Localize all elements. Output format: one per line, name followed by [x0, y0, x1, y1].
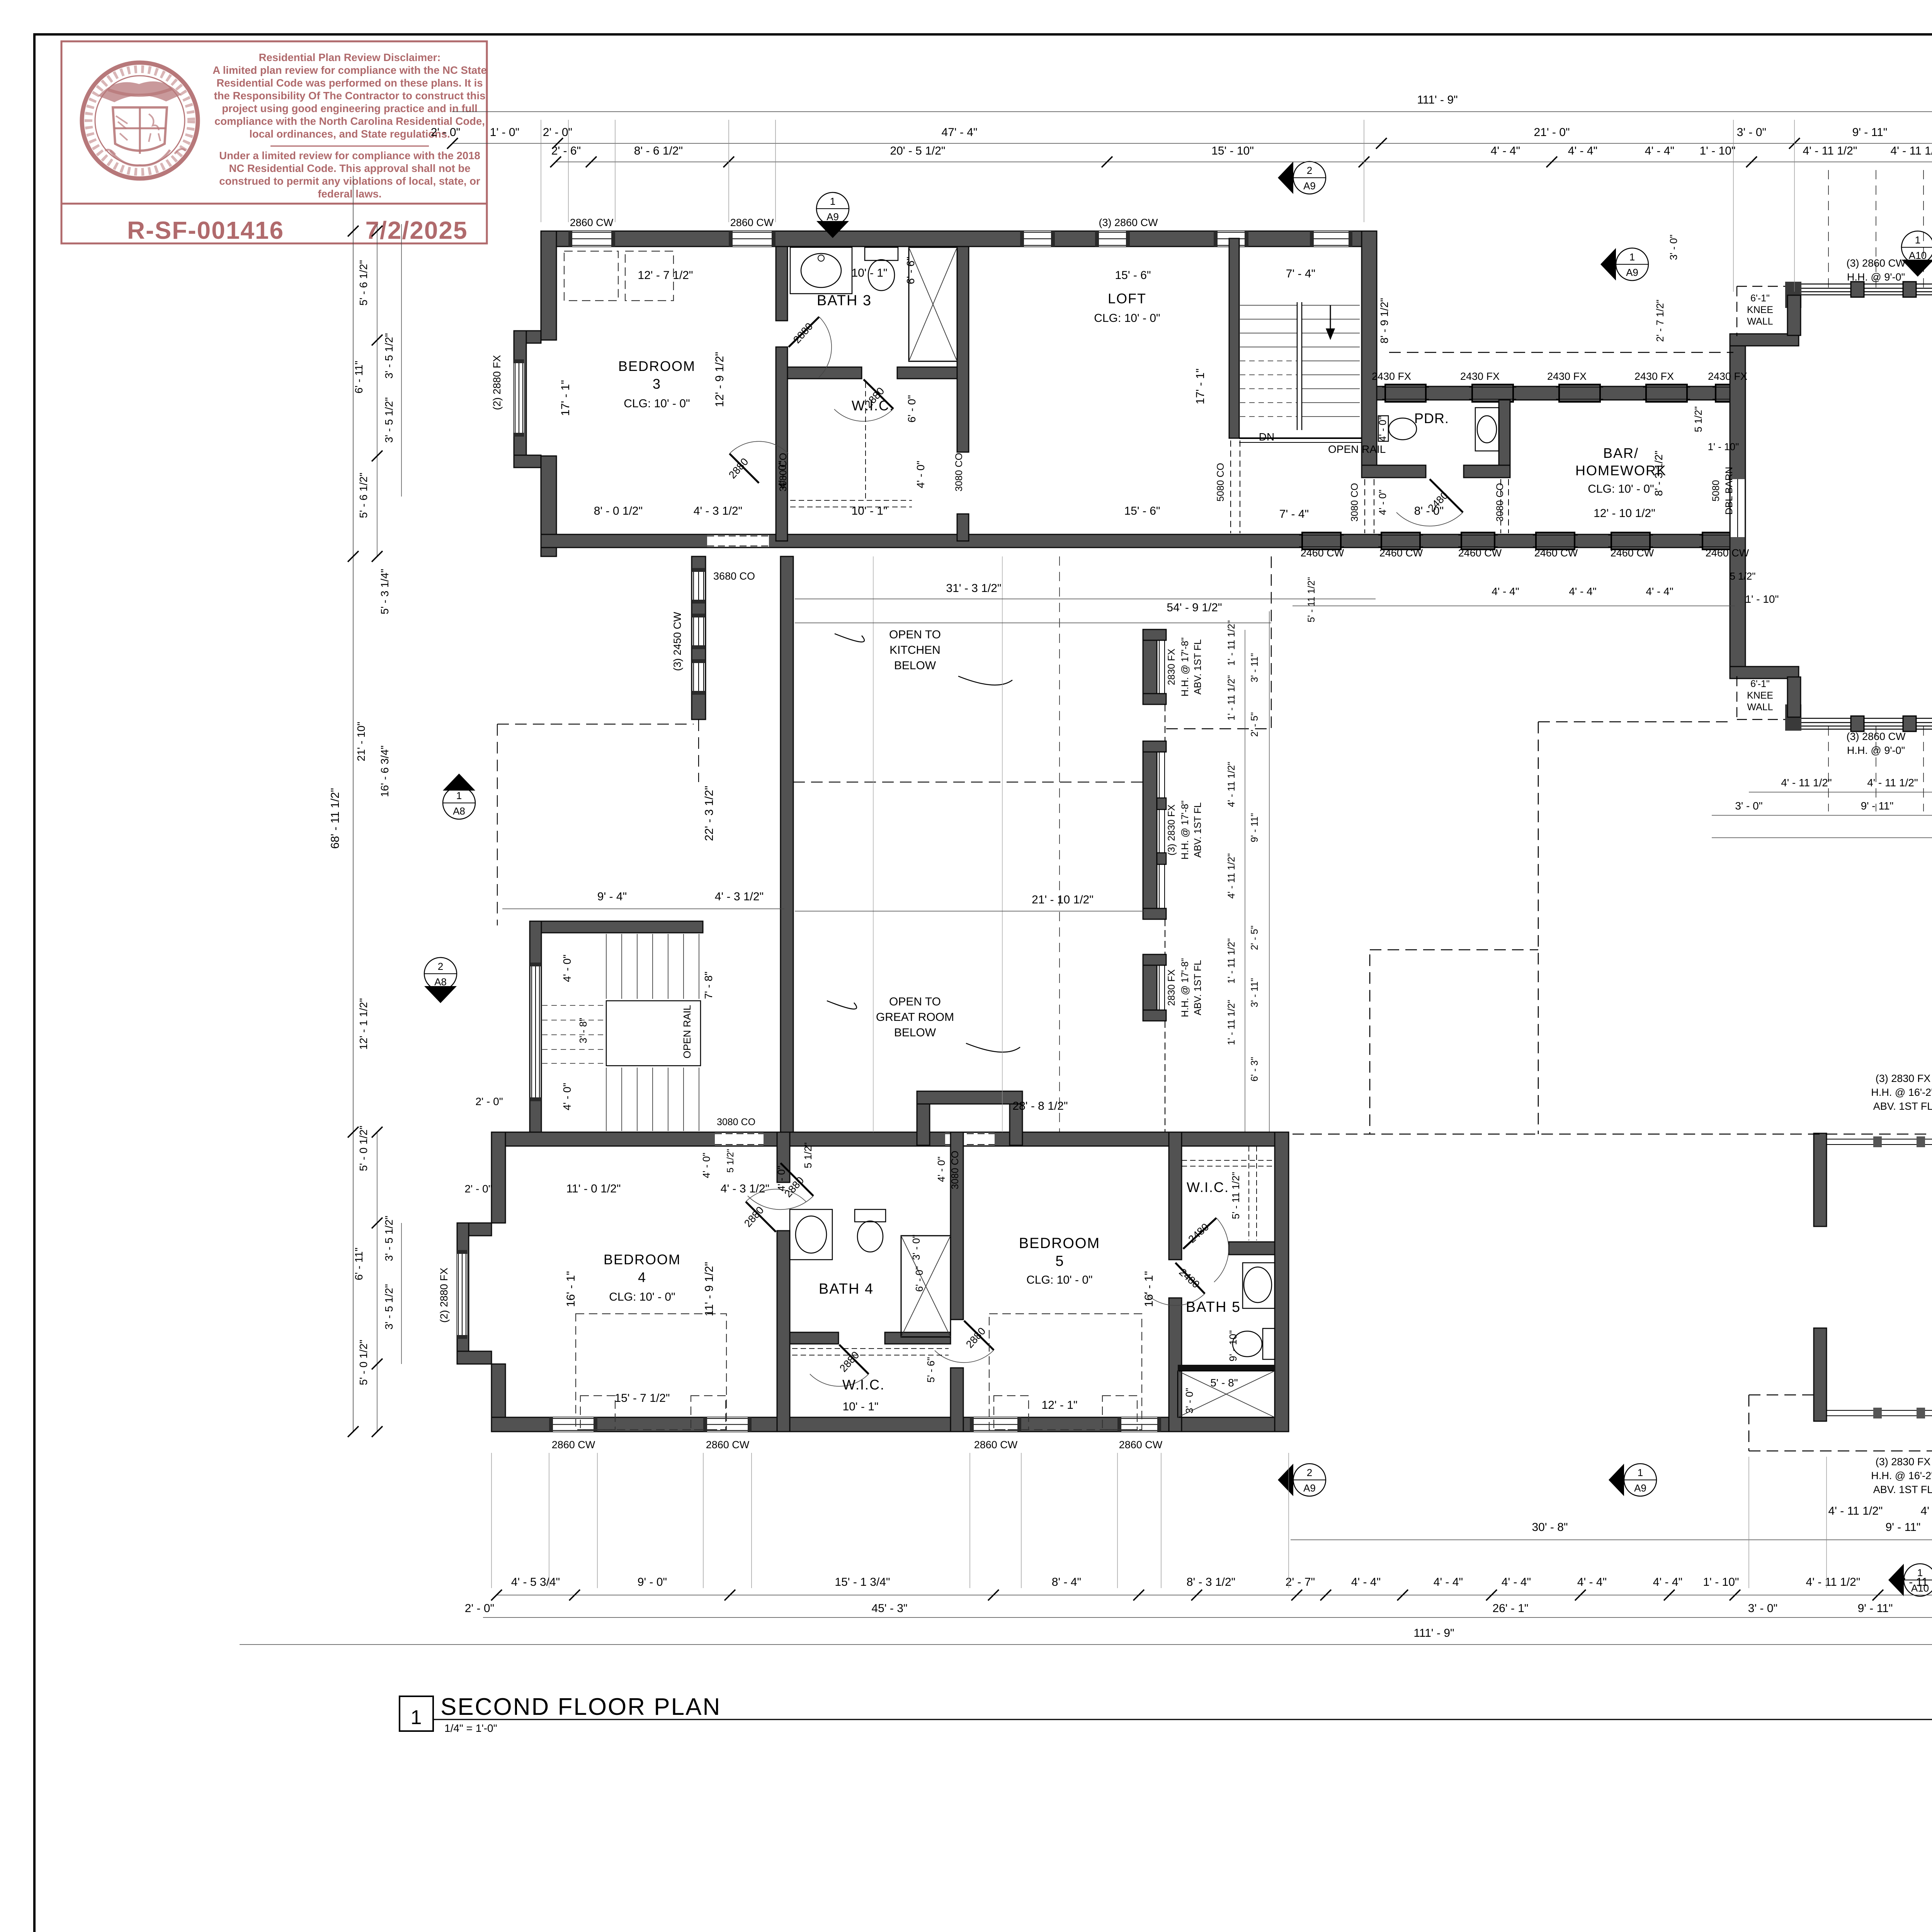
svg-text:2860 CW: 2860 CW: [552, 1439, 595, 1451]
svg-text:1' - 11 1/2": 1' - 11 1/2": [1226, 620, 1237, 665]
svg-text:3' - 0": 3' - 0": [1748, 1602, 1777, 1615]
svg-text:BEDROOM: BEDROOM: [618, 358, 696, 374]
svg-text:4' - 4": 4' - 4": [1646, 585, 1673, 597]
svg-text:8' - 4": 8' - 4": [1052, 1576, 1081, 1588]
svg-text:2430 FX: 2430 FX: [1460, 371, 1500, 382]
svg-text:16' - 1": 16' - 1": [1143, 1271, 1155, 1307]
svg-text:6' - 0": 6' - 0": [906, 395, 918, 422]
svg-text:5' - 8": 5' - 8": [1210, 1377, 1238, 1389]
svg-text:OPEN RAIL: OPEN RAIL: [1328, 443, 1386, 455]
svg-text:3' - 0": 3' - 0": [1737, 126, 1766, 139]
svg-text:KITCHEN: KITCHEN: [889, 644, 940, 656]
svg-text:2' - 6": 2' - 6": [551, 145, 581, 157]
svg-text:17' - 1": 17' - 1": [1194, 368, 1207, 404]
svg-text:5' - 3 1/4": 5' - 3 1/4": [379, 569, 391, 614]
svg-text:KNEE: KNEE: [1747, 304, 1773, 315]
svg-text:A9: A9: [1626, 267, 1638, 278]
svg-text:15' - 6": 15' - 6": [1115, 269, 1151, 282]
svg-text:3' - 5 1/2": 3' - 5 1/2": [383, 397, 395, 443]
svg-text:54' - 9 1/2": 54' - 9 1/2": [1167, 601, 1222, 614]
svg-text:12' - 10 1/2": 12' - 10 1/2": [1594, 507, 1655, 520]
svg-text:A limited plan review for comp: A limited plan review for compliance wit…: [213, 64, 487, 76]
svg-text:4' - 0": 4' - 0": [561, 1083, 573, 1110]
svg-text:CLG: 10' - 0": CLG: 10' - 0": [609, 1291, 675, 1303]
svg-text:(2) 2880 FX: (2) 2880 FX: [491, 355, 503, 410]
svg-text:11' - 9 1/2": 11' - 9 1/2": [703, 1262, 716, 1316]
svg-text:3' - 8": 3' - 8": [577, 1018, 589, 1043]
svg-text:1: 1: [1915, 234, 1920, 246]
svg-text:ABV. 1ST FL: ABV. 1ST FL: [1192, 802, 1203, 857]
svg-text:3080 CO: 3080 CO: [950, 1151, 961, 1189]
svg-text:4' - 4": 4' - 4": [1434, 1576, 1463, 1588]
svg-text:3' - 11": 3' - 11": [1249, 978, 1260, 1007]
svg-text:6' - 3": 6' - 3": [1249, 1057, 1260, 1082]
svg-text:A9: A9: [827, 211, 839, 223]
svg-text:9' - 10": 9' - 10": [1227, 1330, 1239, 1362]
svg-text:4' - 4": 4' - 4": [1502, 1576, 1531, 1588]
svg-text:2460 CW: 2460 CW: [1379, 547, 1423, 559]
svg-text:SECOND FLOOR PLAN: SECOND FLOOR PLAN: [440, 1694, 721, 1720]
svg-text:10' - 1": 10' - 1": [851, 267, 887, 279]
svg-text:4' - 3 1/2": 4' - 3 1/2": [721, 1182, 769, 1195]
svg-text:9' - 0": 9' - 0": [638, 1576, 667, 1588]
svg-text:111' - 9": 111' - 9": [1417, 94, 1458, 106]
svg-text:4' - 4": 4' - 4": [1653, 1576, 1682, 1588]
svg-text:4' - 4": 4' - 4": [1351, 1576, 1381, 1588]
svg-text:4' - 0": 4' - 0": [1377, 416, 1388, 442]
svg-text:31' - 3 1/2": 31' - 3 1/2": [946, 582, 1001, 595]
svg-text:R-SF-001416: R-SF-001416: [127, 216, 284, 244]
svg-text:(3) 2860 CW: (3) 2860 CW: [1099, 217, 1158, 228]
svg-text:1' - 10": 1' - 10": [1703, 1576, 1739, 1588]
svg-text:3080 CO: 3080 CO: [717, 1117, 755, 1128]
svg-text:2: 2: [1307, 1467, 1312, 1478]
svg-text:9' - 11": 9' - 11": [1861, 800, 1894, 812]
svg-text:12' - 9 1/2": 12' - 9 1/2": [713, 352, 726, 407]
svg-text:6'-1": 6'-1": [1750, 293, 1770, 304]
svg-text:5' - 6": 5' - 6": [925, 1357, 937, 1383]
svg-text:8' - 0": 8' - 0": [1414, 505, 1444, 517]
svg-text:5080 CO: 5080 CO: [1215, 463, 1226, 502]
svg-text:4' - 0": 4' - 0": [935, 1156, 947, 1182]
svg-text:11' - 0 1/2": 11' - 0 1/2": [566, 1182, 621, 1195]
svg-text:7' - 4": 7' - 4": [1279, 508, 1309, 520]
svg-text:20' - 5 1/2": 20' - 5 1/2": [890, 145, 945, 157]
svg-text:4' - 11 1/2": 4' - 11 1/2": [1891, 145, 1932, 157]
svg-text:6'-1": 6'-1": [1750, 679, 1770, 689]
svg-text:1: 1: [1629, 251, 1635, 263]
svg-text:BATH 5: BATH 5: [1186, 1299, 1241, 1315]
svg-text:4' - 11 1/2": 4' - 11 1/2": [1226, 853, 1237, 898]
svg-text:4' - 4": 4' - 4": [1568, 145, 1597, 157]
svg-text:KNEE: KNEE: [1747, 690, 1773, 701]
svg-text:17' - 1": 17' - 1": [559, 380, 572, 416]
svg-text:10' - 1": 10' - 1": [851, 505, 887, 517]
svg-text:5080: 5080: [1711, 480, 1721, 502]
svg-text:OPEN TO: OPEN TO: [889, 628, 941, 641]
svg-text:H.H. @ 17'-8": H.H. @ 17'-8": [1180, 958, 1190, 1017]
svg-text:16' - 1": 16' - 1": [565, 1271, 577, 1307]
svg-text:5 1/2": 5 1/2": [1692, 406, 1704, 432]
svg-text:6' - 11": 6' - 11": [353, 1248, 365, 1281]
svg-text:2: 2: [1307, 165, 1312, 176]
svg-text:3680 CO: 3680 CO: [713, 570, 755, 582]
svg-text:A9: A9: [1303, 180, 1316, 192]
svg-text:BATH 3: BATH 3: [817, 293, 872, 309]
svg-text:3' - 11": 3' - 11": [1249, 653, 1260, 682]
svg-text:2' - 0": 2' - 0": [431, 126, 460, 139]
svg-text:5 1/2": 5 1/2": [1730, 570, 1755, 582]
svg-text:3080 CO: 3080 CO: [1349, 483, 1360, 522]
svg-text:3' - 0": 3' - 0": [910, 1235, 922, 1260]
svg-text:12' - 1": 12' - 1": [1041, 1399, 1077, 1412]
svg-text:ABV. 1ST FL: ABV. 1ST FL: [1873, 1484, 1932, 1495]
svg-text:2' - 7": 2' - 7": [1286, 1576, 1315, 1588]
svg-text:A9: A9: [1303, 1482, 1316, 1494]
svg-text:8' - 6 1/2": 8' - 6 1/2": [634, 145, 683, 157]
svg-text:W.I.C.: W.I.C.: [852, 398, 894, 413]
svg-text:4' - 4": 4' - 4": [1577, 1576, 1607, 1588]
svg-text:7' - 4": 7' - 4": [1286, 267, 1315, 280]
svg-text:22' - 3 1/2": 22' - 3 1/2": [703, 786, 716, 841]
svg-text:4' - 4": 4' - 4": [1645, 145, 1674, 157]
svg-text:111' - 9": 111' - 9": [1413, 1627, 1454, 1639]
svg-text:Residential Code was performed: Residential Code was performed on these …: [216, 77, 483, 89]
svg-text:3' - 0": 3' - 0": [1735, 800, 1762, 812]
svg-text:2830 FX: 2830 FX: [1166, 969, 1177, 1006]
svg-text:OPEN TO: OPEN TO: [889, 995, 941, 1008]
svg-text:3' - 5 1/2": 3' - 5 1/2": [383, 1216, 395, 1261]
svg-text:2830 FX: 2830 FX: [1166, 648, 1177, 685]
svg-text:project using good engineering: project using good engineering practice …: [222, 102, 478, 114]
svg-text:45' - 3": 45' - 3": [871, 1602, 907, 1615]
svg-text:4' - 0": 4' - 0": [701, 1153, 712, 1178]
svg-text:3' - 0": 3' - 0": [1184, 1388, 1195, 1413]
svg-text:8' - 3 1/2": 8' - 3 1/2": [1653, 451, 1665, 496]
svg-text:28' - 8 1/2": 28' - 8 1/2": [1012, 1100, 1068, 1112]
svg-text:OPEN RAIL: OPEN RAIL: [681, 1005, 693, 1059]
svg-text:local ordinances, and State re: local ordinances, and State regulations.: [249, 128, 450, 140]
svg-text:4' - 11 1/2": 4' - 11 1/2": [1921, 1505, 1932, 1517]
svg-text:9' - 11": 9' - 11": [1249, 813, 1260, 842]
svg-text:BELOW: BELOW: [894, 1026, 936, 1039]
svg-text:8' - 0 1/2": 8' - 0 1/2": [594, 505, 643, 517]
svg-text:H.H. @ 16'-2": H.H. @ 16'-2": [1871, 1087, 1932, 1098]
svg-text:4' - 11 1/2": 4' - 11 1/2": [1781, 777, 1832, 789]
svg-text:BELOW: BELOW: [894, 659, 936, 672]
svg-text:4' - 5 3/4": 4' - 5 3/4": [511, 1576, 560, 1588]
svg-text:Under a limited review for com: Under a limited review for compliance wi…: [219, 150, 480, 162]
svg-text:21' - 0": 21' - 0": [1534, 126, 1570, 139]
svg-text:5: 5: [1055, 1253, 1063, 1269]
svg-text:A9: A9: [1634, 1482, 1646, 1494]
svg-text:3080 CO: 3080 CO: [1495, 483, 1505, 522]
svg-text:NC Residential Code. This appr: NC Residential Code. This approval shall…: [229, 162, 471, 174]
svg-text:2860 CW: 2860 CW: [706, 1439, 750, 1451]
svg-text:8' - 3 1/2": 8' - 3 1/2": [1187, 1576, 1235, 1588]
svg-text:4' - 4": 4' - 4": [1569, 585, 1596, 597]
svg-text:7' - 8": 7' - 8": [702, 971, 714, 999]
svg-text:(3) 2450 CW: (3) 2450 CW: [672, 612, 683, 671]
svg-text:compliance with the North Caro: compliance with the North Carolina Resid…: [214, 115, 485, 127]
svg-text:8' - 9 1/2": 8' - 9 1/2": [1378, 298, 1390, 344]
svg-text:LOFT: LOFT: [1108, 291, 1146, 306]
svg-text:1' - 11 1/2": 1' - 11 1/2": [1226, 938, 1237, 983]
svg-text:1: 1: [830, 196, 835, 207]
svg-text:2430 FX: 2430 FX: [1634, 371, 1674, 382]
svg-text:2430 FX: 2430 FX: [1547, 371, 1587, 382]
svg-text:1' - 10": 1' - 10": [1699, 145, 1735, 157]
svg-text:2' - 5": 2' - 5": [1249, 712, 1260, 737]
svg-text:3: 3: [653, 376, 661, 392]
svg-text:4' - 0": 4' - 0": [561, 954, 573, 982]
svg-text:GREAT ROOM: GREAT ROOM: [876, 1011, 954, 1024]
svg-text:1' - 11 1/2": 1' - 11 1/2": [1226, 1000, 1237, 1045]
svg-text:3080 CO: 3080 CO: [954, 453, 964, 492]
svg-text:2460 CW: 2460 CW: [1706, 547, 1749, 559]
svg-text:3' - 5 1/2": 3' - 5 1/2": [383, 1284, 395, 1330]
svg-text:BAR/: BAR/: [1603, 445, 1639, 461]
svg-text:DBL BARN: DBL BARN: [1724, 467, 1735, 515]
svg-text:6' - 0": 6' - 0": [913, 1266, 925, 1292]
svg-text:5' - 11 1/2": 5' - 11 1/2": [1230, 1172, 1242, 1219]
svg-text:2' - 5": 2' - 5": [1249, 925, 1260, 950]
svg-text:1' - 0": 1' - 0": [490, 126, 519, 139]
svg-text:2: 2: [438, 961, 443, 972]
svg-text:CLG: 10' - 0": CLG: 10' - 0": [1026, 1274, 1092, 1286]
svg-text:10' - 1": 10' - 1": [842, 1400, 878, 1413]
svg-text:21' - 10 1/2": 21' - 10 1/2": [1032, 893, 1094, 906]
svg-text:4' - 0": 4' - 0": [915, 461, 927, 488]
svg-text:1: 1: [411, 1706, 422, 1729]
svg-text:2860 CW: 2860 CW: [570, 217, 614, 228]
svg-text:2' - 7 1/2": 2' - 7 1/2": [1654, 299, 1666, 342]
svg-text:15' - 7 1/2": 15' - 7 1/2": [614, 1392, 670, 1405]
svg-text:1' - 11 1/2": 1' - 11 1/2": [1226, 675, 1237, 720]
svg-text:26' - 1": 26' - 1": [1492, 1602, 1528, 1615]
svg-text:16' - 6 3/4": 16' - 6 3/4": [379, 745, 391, 797]
svg-text:ABV. 1ST FL: ABV. 1ST FL: [1192, 639, 1203, 694]
svg-text:2430 FX: 2430 FX: [1372, 371, 1411, 382]
svg-text:4' - 11 1/2": 4' - 11 1/2": [1867, 777, 1918, 789]
svg-text:4' - 11 1/2": 4' - 11 1/2": [1226, 762, 1237, 807]
svg-text:3' - 5 1/2": 3' - 5 1/2": [383, 333, 395, 379]
svg-text:2' - 0": 2' - 0": [543, 126, 572, 139]
svg-text:A10: A10: [1909, 250, 1927, 261]
svg-text:4' - 3 1/2": 4' - 3 1/2": [694, 505, 742, 517]
svg-text:21' - 10": 21' - 10": [355, 722, 367, 761]
svg-text:4' - 0": 4' - 0": [776, 461, 788, 488]
svg-text:1: 1: [456, 790, 462, 801]
svg-text:3' - 0": 3' - 0": [1668, 235, 1679, 260]
svg-text:9' - 11": 9' - 11": [1852, 126, 1888, 139]
svg-text:4' - 11 1/2": 4' - 11 1/2": [1803, 145, 1857, 157]
svg-text:5' - 6 1/2": 5' - 6 1/2": [357, 473, 369, 518]
svg-text:A8: A8: [453, 805, 465, 817]
svg-text:47' - 4": 47' - 4": [941, 126, 977, 139]
svg-text:5' - 0 1/2": 5' - 0 1/2": [357, 1126, 369, 1171]
svg-text:DN: DN: [1259, 431, 1274, 443]
svg-text:12' - 7 1/2": 12' - 7 1/2": [638, 269, 693, 282]
svg-text:6' - 11": 6' - 11": [353, 361, 365, 394]
svg-text:(2) 2880 FX: (2) 2880 FX: [438, 1268, 450, 1323]
svg-text:4: 4: [638, 1269, 646, 1285]
svg-text:9' - 11": 9' - 11": [1886, 1521, 1921, 1534]
svg-text:CLG: 10' - 0": CLG: 10' - 0": [1588, 483, 1654, 495]
svg-text:1' - 10": 1' - 10": [1708, 441, 1739, 452]
svg-text:A8: A8: [434, 976, 447, 988]
svg-text:Residential Plan Review Discla: Residential Plan Review Disclaimer:: [259, 51, 441, 63]
svg-text:2860 CW: 2860 CW: [1119, 1439, 1163, 1451]
svg-text:the Responsibility Of The Cont: the Responsibility Of The Contractor to …: [214, 90, 486, 102]
svg-text:5' - 11 1/2": 5' - 11 1/2": [1306, 577, 1317, 622]
svg-text:5' - 6 1/2": 5' - 6 1/2": [357, 260, 369, 306]
svg-text:W.I.C.: W.I.C.: [842, 1377, 885, 1393]
svg-text:9' - 11": 9' - 11": [1858, 1602, 1893, 1615]
svg-text:CLG: 10' - 0": CLG: 10' - 0": [624, 397, 690, 410]
svg-text:4' - 4": 4' - 4": [1491, 145, 1520, 157]
svg-text:federal laws.: federal laws.: [318, 188, 381, 200]
svg-text:4' - 11 1/2": 4' - 11 1/2": [1828, 1505, 1883, 1517]
svg-text:WALL: WALL: [1747, 702, 1773, 713]
svg-text:4' - 11 1/2": 4' - 11 1/2": [1806, 1576, 1861, 1588]
svg-text:4' - 11 1/2": 4' - 11 1/2": [1897, 1576, 1932, 1588]
svg-text:H.H. @ 17'-8": H.H. @ 17'-8": [1180, 801, 1190, 860]
svg-text:4' - 0": 4' - 0": [1377, 490, 1388, 515]
svg-text:W.I.C.: W.I.C.: [1187, 1179, 1229, 1195]
svg-text:ABV. 1ST FL: ABV. 1ST FL: [1873, 1100, 1932, 1112]
svg-text:(3) 2830 FX: (3) 2830 FX: [1876, 1073, 1931, 1084]
svg-text:7/2/2025: 7/2/2025: [365, 216, 468, 244]
svg-text:15' - 10": 15' - 10": [1211, 145, 1254, 157]
svg-text:15' - 6": 15' - 6": [1124, 505, 1160, 517]
svg-text:2460 CW: 2460 CW: [1301, 547, 1344, 559]
svg-text:WALL: WALL: [1747, 316, 1773, 327]
svg-text:68' - 11 1/2": 68' - 11 1/2": [329, 788, 342, 849]
svg-text:2' - 0": 2' - 0": [464, 1183, 492, 1195]
svg-text:H.H. @ 17'-8": H.H. @ 17'-8": [1180, 638, 1190, 697]
svg-text:(3) 2830 FX: (3) 2830 FX: [1876, 1456, 1931, 1468]
svg-text:2460 CW: 2460 CW: [1534, 547, 1578, 559]
svg-text:5 1/2": 5 1/2": [725, 1149, 736, 1173]
svg-text:4' - 3 1/2": 4' - 3 1/2": [715, 890, 764, 903]
svg-text:9' - 4": 9' - 4": [597, 890, 627, 903]
svg-text:ABV. 1ST FL: ABV. 1ST FL: [1192, 960, 1203, 1015]
svg-text:BEDROOM: BEDROOM: [1019, 1235, 1100, 1252]
svg-text:4' - 0": 4' - 0": [776, 1166, 787, 1191]
svg-text:PDR.: PDR.: [1414, 410, 1449, 426]
svg-text:BATH 4: BATH 4: [819, 1281, 874, 1297]
svg-text:2' - 0": 2' - 0": [465, 1602, 494, 1615]
svg-text:5 1/2": 5 1/2": [802, 1142, 814, 1168]
svg-text:2460 CW: 2460 CW: [1611, 547, 1654, 559]
svg-text:CLG: 10' - 0": CLG: 10' - 0": [1094, 312, 1160, 325]
svg-text:12' - 1 1/2": 12' - 1 1/2": [357, 998, 369, 1050]
svg-text:1: 1: [1638, 1467, 1643, 1478]
svg-text:2460 CW: 2460 CW: [1458, 547, 1502, 559]
svg-text:4' - 4": 4' - 4": [1492, 585, 1519, 597]
svg-text:H.H. @ 16'-2": H.H. @ 16'-2": [1871, 1470, 1932, 1481]
svg-text:30' - 8": 30' - 8": [1532, 1521, 1568, 1534]
svg-text:construed to permit any violat: construed to permit any violations of lo…: [219, 175, 480, 187]
svg-text:5' - 0 1/2": 5' - 0 1/2": [357, 1340, 369, 1385]
svg-text:2860 CW: 2860 CW: [730, 217, 774, 228]
svg-text:6' - 6": 6' - 6": [905, 257, 917, 284]
svg-text:1' - 10": 1' - 10": [1745, 593, 1779, 605]
svg-text:2860 CW: 2860 CW: [974, 1439, 1018, 1451]
svg-text:1/4" = 1'-0": 1/4" = 1'-0": [444, 1722, 497, 1734]
svg-text:15' - 1 3/4": 15' - 1 3/4": [835, 1576, 890, 1588]
svg-text:2430 FX: 2430 FX: [1708, 371, 1747, 382]
svg-text:(3) 2830 FX: (3) 2830 FX: [1166, 804, 1177, 855]
svg-text:BEDROOM: BEDROOM: [604, 1252, 681, 1267]
svg-text:2' - 0": 2' - 0": [475, 1095, 503, 1107]
